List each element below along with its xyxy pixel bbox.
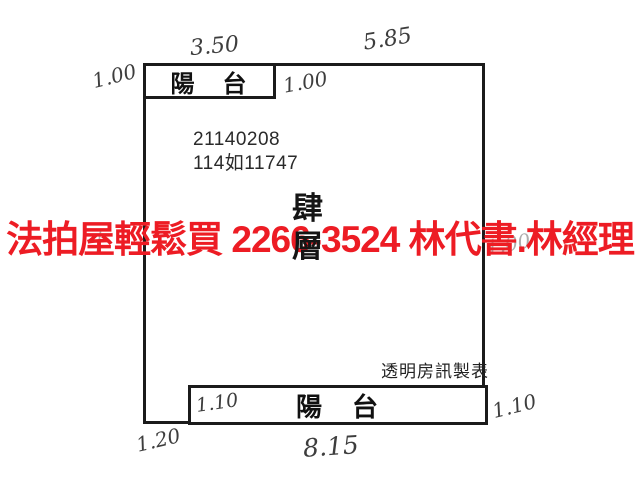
dimension-bottom-right-height: 1.10 (490, 389, 539, 423)
floorplan-canvas: 陽 台 陽 台 / 1.00 21140208 114如11747 肆層 透明房… (0, 0, 640, 480)
dimension-bottom-left-height: 1.20 (134, 423, 183, 456)
dimension-left-outer-height: 1.00 (90, 59, 139, 93)
floor-label: 肆層 (292, 190, 325, 266)
dimension-bottom-width: 8.15 (302, 430, 360, 463)
dimension-top-right-width: 5.85 (361, 23, 413, 55)
case-number: 21140208 (193, 128, 298, 152)
dimension-top-left-width: 3.50 (189, 32, 240, 61)
case-identifiers: 21140208 114如11747 (193, 128, 298, 176)
case-reference: 114如11747 (193, 152, 298, 176)
publisher-label: 透明房訊製表 (381, 357, 489, 382)
balcony-bottom-label: 陽 台 (296, 387, 380, 424)
balcony-top-label: 陽 台 (171, 64, 249, 99)
balcony-top-box: 陽 台 (143, 63, 276, 99)
